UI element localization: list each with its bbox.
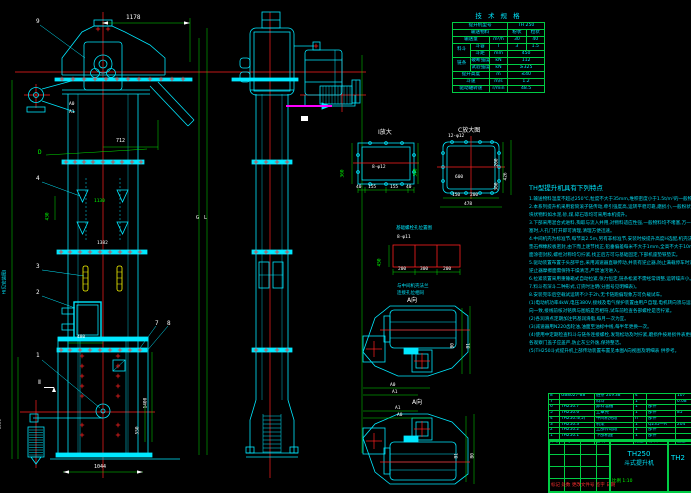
note-line: 块状物料如水泥,砂,煤,碎石等均可采用本机提升。 <box>529 212 691 220</box>
plan-dim-b0: B0 <box>452 343 457 348</box>
plan-dim-b1b: B1 <box>456 453 461 458</box>
note-line: 垫石棉橡胶板密封,由下而上逐节找正,铅垂偏差每米不大于1mm,全高不大于10mm… <box>529 244 691 252</box>
dim-a0: A0 <box>69 103 74 108</box>
detail-i-dim-left: 360 <box>342 169 347 177</box>
note-line: (2)各润滑点定期加注钙基润滑脂,每月一次为宜。 <box>529 316 691 324</box>
spec-height-unit: m <box>489 71 507 78</box>
note-line: 2.本系列提升机采用套筒滚子链传动,牵引强度高,运转平稳可靠,磨损小,一般粉状及… <box>529 204 691 212</box>
spec-capacity-label: 输送量 <box>453 36 490 43</box>
spec-height-value: ≤40 <box>508 71 545 78</box>
balloon-4: 4 <box>36 176 40 182</box>
spec-test-value: ≥325 <box>508 64 545 71</box>
dim-label-l: L <box>204 216 207 221</box>
plan-dim-a1: A1 <box>392 391 397 396</box>
spec-table-title: 技 术 规 格 <box>452 10 545 20</box>
spec-test-label: 试验强度 <box>471 64 489 71</box>
dim-1400: 1400 <box>145 398 150 409</box>
dim-1333: 1333 <box>0 419 3 430</box>
plan-dim-a1b: A1 <box>395 407 400 412</box>
spec-capacity-a: 30 <box>508 36 526 43</box>
spec-break-label: 破断强度 <box>471 57 489 64</box>
spec-rpm-label: 驱动轴转速 <box>453 85 490 92</box>
spec-pitch-label: 斗距 <box>471 50 489 57</box>
plan-dim-a0b: A0 <box>397 414 402 419</box>
note-line: 1.输送物料温度不超过250℃,粒度不大于35mm,堆积密度小于1.5t/m³的… <box>529 196 691 204</box>
note-line: 逆止器摩擦面需保持干燥清洁,严禁油污进入。 <box>529 268 691 276</box>
detail-c-dim-200b: 200 <box>470 194 478 199</box>
balloon-3: 3 <box>36 264 40 270</box>
note-line: (5)TH250斗式提升机上部传动装置布置见本图A向视图及明细表 供参考。 <box>529 348 691 356</box>
note-line: 6.拉紧装置采用重锤箱式自动拉紧,张力恒定,链条松紧不需经常调整,运转噪声小。 <box>529 276 691 284</box>
spec-vol-b: 1.5 <box>526 43 544 50</box>
title-block-model: TH250 <box>610 450 668 458</box>
dim-label-g: G <box>196 216 199 221</box>
label-d: D <box>38 150 42 156</box>
dim-430: 430 <box>47 212 52 220</box>
title-block-product: 斗式提升机 <box>610 458 668 467</box>
spec-vol-label: 斗容 <box>471 43 489 50</box>
note-line: 各观察门盖子应盖严,防止灰尘外逸,保持整洁。 <box>529 340 691 348</box>
drawing-code-cell: TH2 <box>667 441 691 492</box>
detail-i-dim-b2: 155 <box>368 186 376 191</box>
signature-grid: 标记 处数 更改文件号 签字 日期 <box>549 441 611 492</box>
foundation-note-2: 连接孔位相同 <box>397 292 424 297</box>
detail-c-dim-600: 600 <box>455 176 463 181</box>
note-line: 4.中间机壳为标准节,每节高2.5m,另有非标准节,安装时按提升高度H选配,机壳… <box>529 236 691 244</box>
note-line: 7.料斗有深斗二种形式,订货时注明(分图号见明细表)。 <box>529 284 691 292</box>
detail-c-dim-426: 426 <box>505 172 510 180</box>
spec-material-b: 粒状 <box>526 29 544 36</box>
spec-break-unit: kN <box>489 57 507 64</box>
detail-i-dim-b4: 40 <box>406 186 411 191</box>
note-line: 3.下部采用混合式进料,掏取与流入并用,对物料适应性强,一般物料均不堵塞,万一堵 <box>529 220 691 228</box>
spec-model-value: TH 250 <box>508 23 545 30</box>
spec-vol-unit: l <box>489 43 507 50</box>
plan-a-title-lower: A向 <box>412 400 422 406</box>
spec-pitch-unit: mm <box>489 50 507 57</box>
dim-1382: 1382 <box>97 242 108 247</box>
note-line: 8.安装完毕后空载试运转不少于2h,无卡链跑偏现象方可负载试车。 <box>529 292 691 300</box>
spec-capacity-b: 40 <box>526 36 544 43</box>
note-line: (1)电动机功率4kW,电压380V,接线及电气保护装置由用户自理,电机转向须与… <box>529 300 691 308</box>
plan-dim-b1: B1 <box>468 343 473 348</box>
plan-view-a-upper <box>363 306 470 395</box>
plan-view-a-lower <box>363 411 474 484</box>
spec-rpm-unit: r/min <box>489 85 507 92</box>
spec-speed-unit: m/s <box>489 78 507 85</box>
spec-model-label: 提升机型号 <box>453 23 508 30</box>
spec-break-value: 112 <box>508 57 545 64</box>
title-block: 标记 处数 更改文件号 签字 日期 TH250 斗式提升机 比例 1:10 TH… <box>548 440 691 493</box>
note-line: 向一致,接线前核对铭牌与图纸是否相符,试车前检查各部螺栓是否拧紧。 <box>529 308 691 316</box>
notes-block: TH型提升机具有下列特点 1.输送物料温度不超过250℃,粒度不大于35mm,堆… <box>529 182 691 356</box>
foundation-holes-label: 8-φ11 <box>397 236 411 241</box>
dim-480: 480 <box>77 336 85 341</box>
spec-speed-label: 斗速 <box>453 78 490 85</box>
detail-c-dim-200r: 200 <box>496 158 501 166</box>
title-block-scale: 比例 1:10 <box>612 480 633 485</box>
notes-lines: 1.输送物料温度不超过250℃,粒度不大于35mm,堆积密度小于1.5t/m³的… <box>529 196 691 356</box>
balloon-7: 7 <box>155 321 159 327</box>
note-line: 5.驱动装置布置于头部平台,采用减速器直联传动,并装有逆止器,防止满载停车时逆转… <box>529 260 691 268</box>
detail-c-dim-300r: 300 <box>496 182 501 190</box>
foundation-detail-title: 基础螺栓孔位置图 <box>396 227 432 232</box>
detail-c-dim-150: 150 <box>452 194 460 199</box>
detail-i-dim-right: 300 <box>415 168 420 176</box>
balloon-9: 9 <box>36 19 40 25</box>
spec-height-label: 提升高度 <box>453 71 490 78</box>
side-elevation-view <box>228 12 366 478</box>
balloon-8: 8 <box>167 321 171 327</box>
bom-table: 8 GB8027-88 链条 20×38 4 107 7 料斗 1 0.08 6… <box>548 393 690 445</box>
plan-dim-b0b: B0 <box>472 453 477 458</box>
foundation-note-1: 与中间机壳法兰 <box>397 285 429 290</box>
spec-capacity-unit: m³/h <box>489 36 507 43</box>
signature-row-label: 标记 处数 更改文件号 签字 日期 <box>551 484 615 489</box>
bom-rows: 8 GB8027-88 链条 20×38 4 107 7 料斗 1 0.08 6… <box>549 394 691 440</box>
spec-material-label: 输送物料 <box>453 29 508 36</box>
detail-i-dim-b3: 155 <box>390 186 398 191</box>
foundation-dim-b2: 300 <box>420 268 428 273</box>
dim-1130: 1130 <box>94 200 105 205</box>
detail-c-dim-478: 478 <box>464 203 472 208</box>
foundation-dim-b3: 200 <box>443 268 451 273</box>
note-line: (3)减速器用N220齿轮油,油面至油标中线,每半年更换一次。 <box>529 324 691 332</box>
section-mark-2: Ⅱ <box>38 380 41 386</box>
title-block-code-right: TH2 <box>668 454 691 462</box>
dim-712: 712 <box>116 139 125 144</box>
detail-i-title: I放大 <box>378 130 392 136</box>
dim-550: 550 <box>137 426 142 434</box>
spec-rpm-value: 48.5 <box>508 85 545 92</box>
cad-drawing-canvas: 1178 712 9 A0 A1 D 430 1130 1382 4 3 2 7… <box>0 0 691 491</box>
spec-material-a: 粉状 <box>508 29 526 36</box>
drawing-name-cell: TH250 斗式提升机 比例 1:10 <box>609 441 669 492</box>
detail-i-dim-b1: 40 <box>356 186 361 191</box>
foundation-dim-450: 450 <box>379 258 384 266</box>
dim-a1: A1 <box>69 111 74 116</box>
note-line: 面涂密封胶,螺栓对称均匀拧紧,找正后方可与基础固定,下部机座垫铁垫实。 <box>529 252 691 260</box>
spec-vol-a: 3 <box>508 43 526 50</box>
notes-title: TH型提升机具有下列特点 <box>529 182 691 192</box>
spec-chain-label: 链条 <box>453 57 471 71</box>
spec-pitch-value: 450 <box>508 50 545 57</box>
spec-speed-value: 1.2 <box>508 78 545 85</box>
detail-c-holes: 12-φ12 <box>448 135 464 140</box>
note-line: (4)使用中定期检查料斗与链条连接螺栓,发现松动及时拧紧,磨损件按易损件表更换, <box>529 332 691 340</box>
spec-table: 技 术 规 格 提升机型号 TH 250 输送物料 粉状 粒状 输送量 m³/h… <box>452 10 545 93</box>
detail-i-holes: 8-φ12 <box>372 166 386 171</box>
dim-1178: 1178 <box>126 15 140 21</box>
foundation-dim-b1: 200 <box>398 268 406 273</box>
front-elevation-view <box>12 12 228 478</box>
note-line: 塞时,人孔门打开即可清理,清理方便迅速。 <box>529 228 691 236</box>
balloon-1: 1 <box>36 353 40 359</box>
dim-1044: 1044 <box>94 465 106 470</box>
spec-bucket-label: 料斗 <box>453 43 471 57</box>
spec-test-unit: kN <box>489 64 507 71</box>
plan-a-title-upper: A向 <box>407 298 417 304</box>
balloon-2: 2 <box>36 290 40 296</box>
dim-h-note: H(见安装图) <box>4 270 9 295</box>
plan-dim-a0: A0 <box>390 384 395 389</box>
